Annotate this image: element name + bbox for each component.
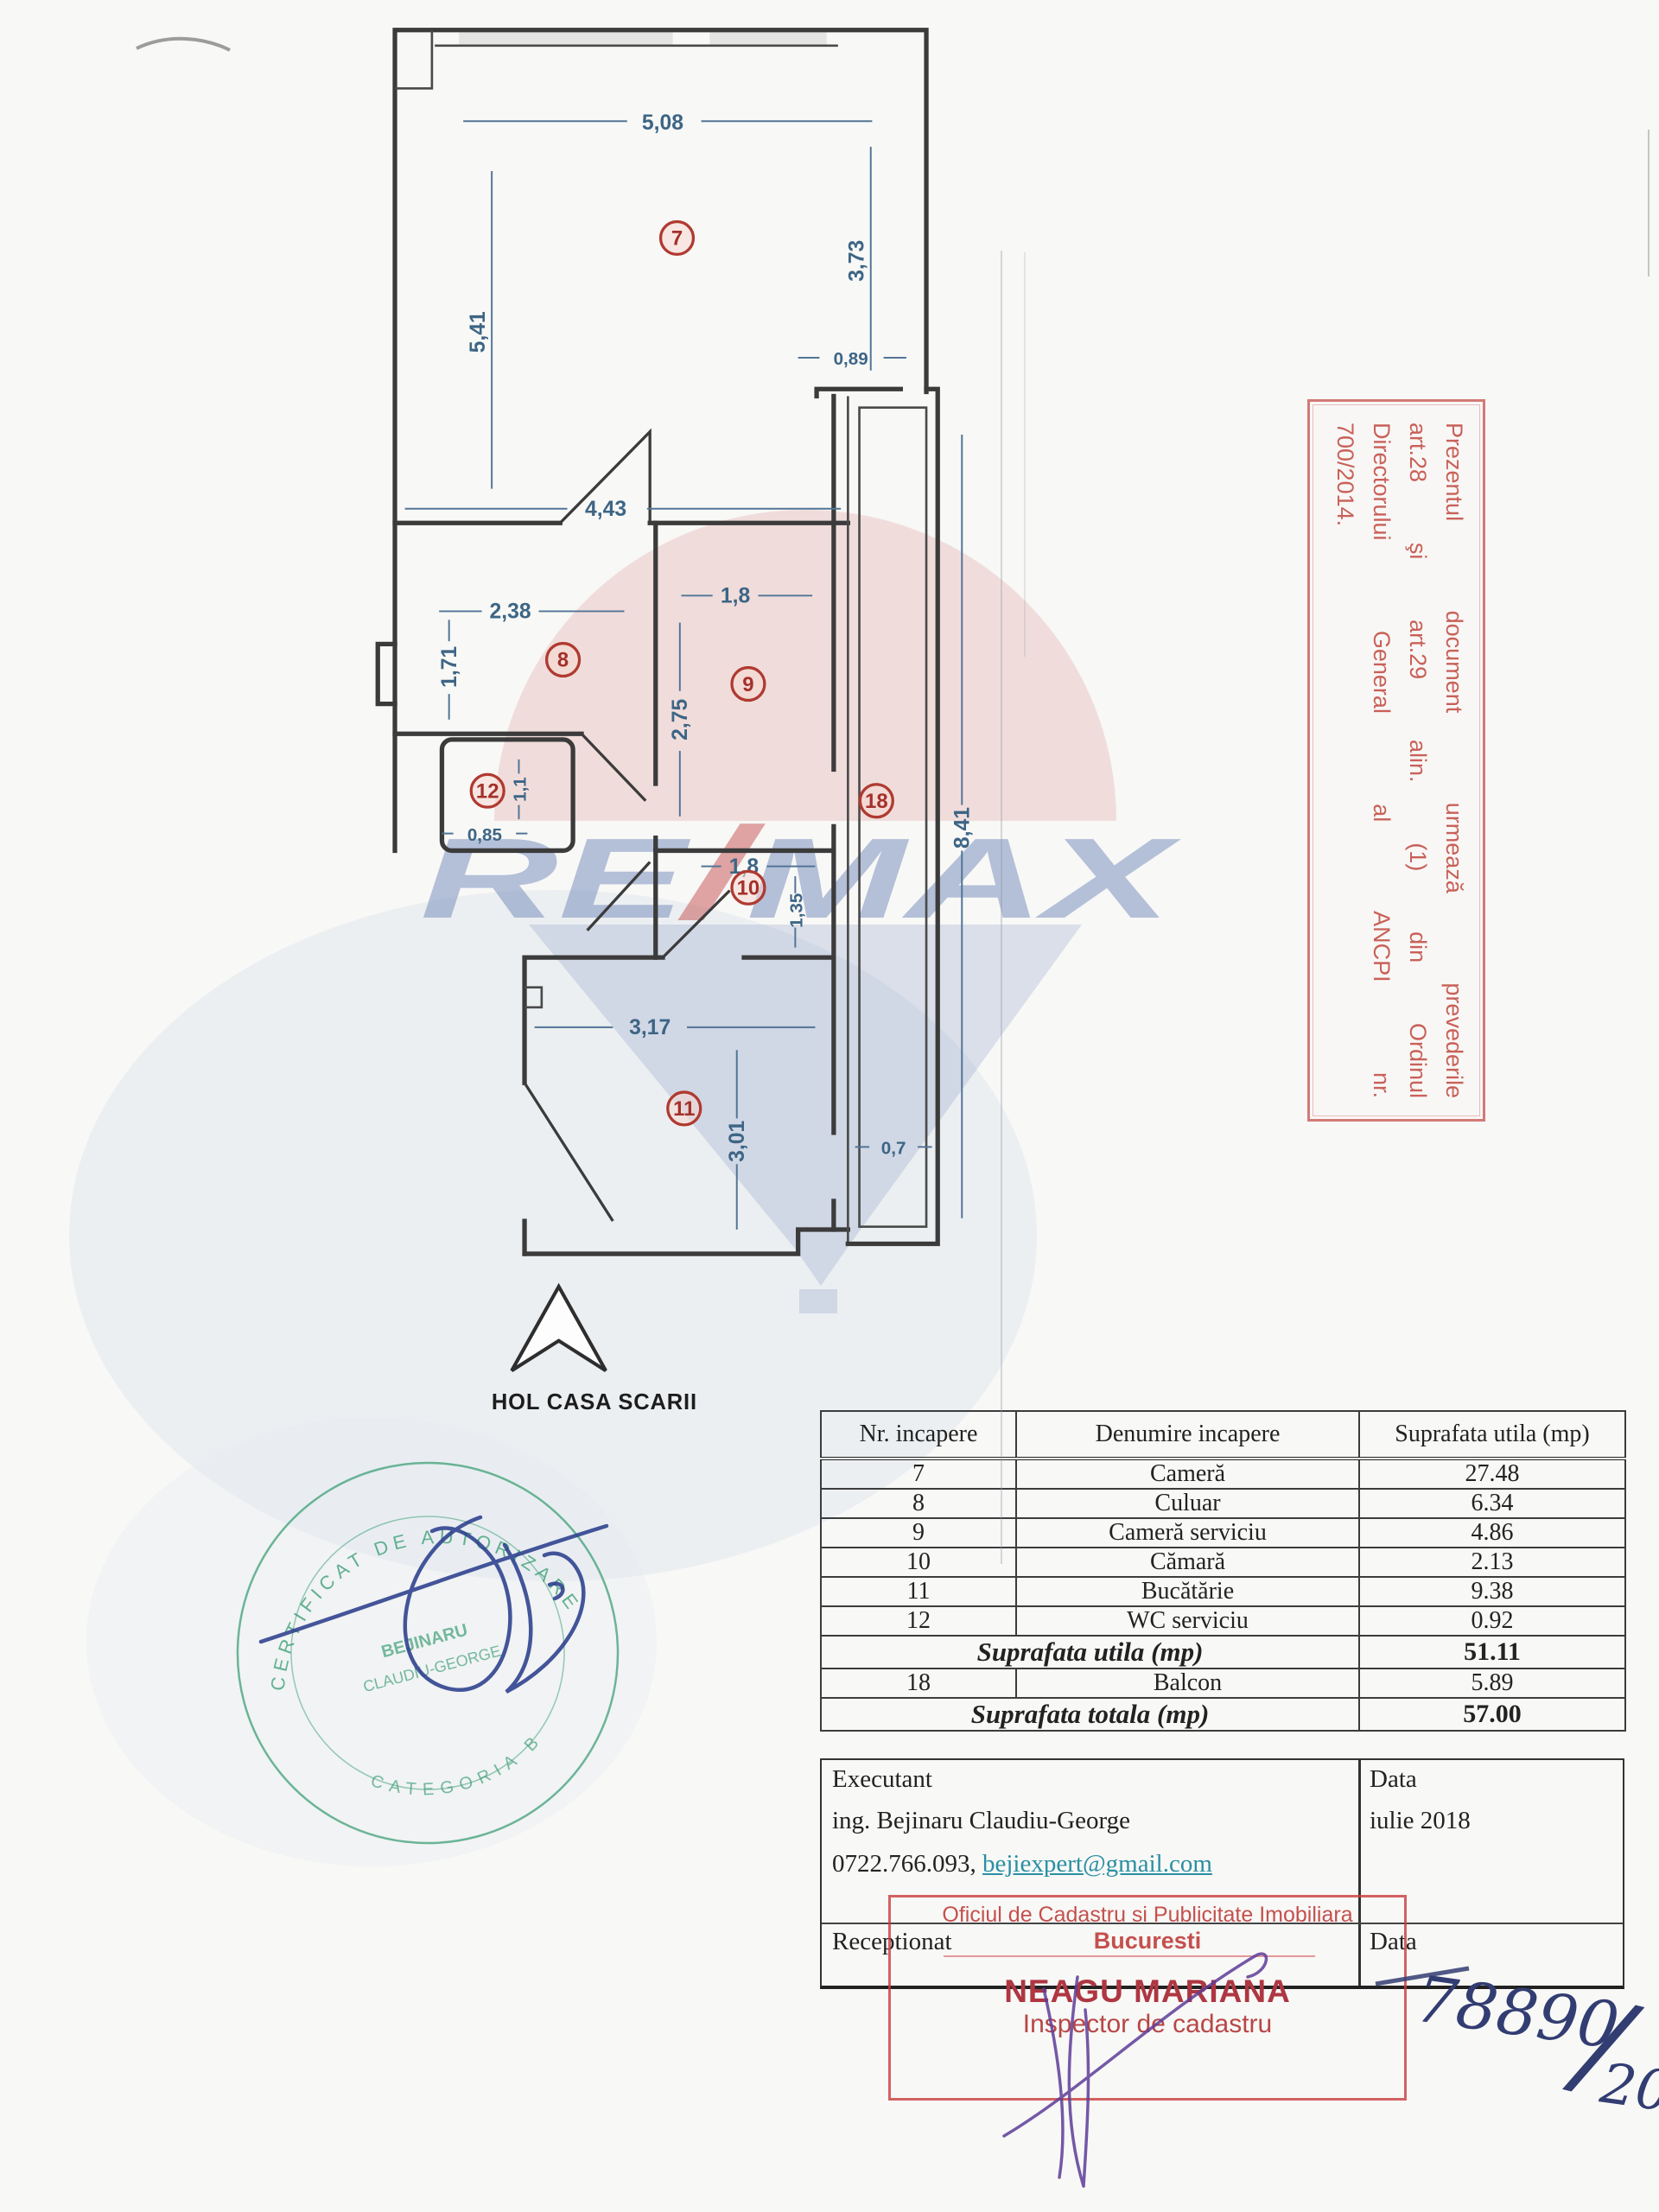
header-suprafata: Suprafata utila (mp) <box>1359 1411 1625 1459</box>
utila-label: Suprafata utila (mp) <box>821 1636 1359 1669</box>
cell-nr: 9 <box>821 1518 1016 1548</box>
table-row: 8Culuar6.34 <box>821 1489 1625 1518</box>
header-denumire: Denumire incapere <box>1016 1411 1359 1459</box>
table-row: 10Cămară2.13 <box>821 1548 1625 1577</box>
utila-value: 51.11 <box>1359 1636 1625 1669</box>
table-row: 18Balcon5.89 <box>821 1669 1625 1698</box>
cell-nr: 7 <box>821 1459 1016 1489</box>
executant-contact: 0722.766.093, bejiexpert@gmail.com <box>832 1850 1212 1878</box>
executant-email-link[interactable]: bejiexpert@gmail.com <box>982 1850 1212 1878</box>
room-area-table: Nr. incapere Denumire incapere Suprafata… <box>820 1410 1626 1732</box>
summary-totala-row: Suprafata totala (mp) 57.00 <box>821 1698 1625 1731</box>
ocpi-inspector-name: NEAGU MARIANA <box>891 1974 1404 2010</box>
cell-denumire: Culuar <box>1016 1489 1359 1518</box>
cell-denumire: Cameră <box>1016 1459 1359 1489</box>
cell-denumire: Cămară <box>1016 1548 1359 1577</box>
cell-nr: 10 <box>821 1548 1016 1577</box>
table-row: 9Cameră serviciu4.86 <box>821 1518 1625 1548</box>
side-stamp-line1: Prezentul document urmează prevederile <box>1436 423 1472 1098</box>
cell-nr: 12 <box>821 1606 1016 1636</box>
ancpi-side-stamp: Prezentul document urmează prevederile a… <box>1307 399 1485 1122</box>
cell-denumire: Balcon <box>1016 1669 1359 1698</box>
scanned-cadastral-document: RE/MAX <box>0 0 1659 2212</box>
cell-suprafata: 2.13 <box>1359 1548 1625 1577</box>
executant-label: Executant <box>832 1765 932 1794</box>
cell-suprafata: 9.38 <box>1359 1577 1625 1606</box>
table-row: 7Cameră27.48 <box>821 1459 1625 1489</box>
table-header-row: Nr. incapere Denumire incapere Suprafata… <box>821 1411 1625 1459</box>
ocpi-line1: Oficiul de Cadastru si Publicitate Imobi… <box>891 1903 1404 1928</box>
cell-nr: 18 <box>821 1669 1016 1698</box>
cell-suprafata: 4.86 <box>1359 1518 1625 1548</box>
summary-utila-row: Suprafata utila (mp) 51.11 <box>821 1636 1625 1669</box>
data-value: iulie 2018 <box>1370 1807 1471 1835</box>
cell-suprafata: 6.34 <box>1359 1489 1625 1518</box>
ocpi-line2: Bucuresti <box>891 1928 1404 1955</box>
cell-nr: 11 <box>821 1577 1016 1606</box>
header-nr-incapere: Nr. incapere <box>821 1411 1016 1459</box>
table-row: 12WC serviciu0.92 <box>821 1606 1625 1636</box>
totala-value: 57.00 <box>1359 1698 1625 1731</box>
data-label: Data <box>1370 1765 1417 1794</box>
cell-denumire: Bucătărie <box>1016 1577 1359 1606</box>
ocpi-inspector-role: Inspector de cadastru <box>891 2010 1404 2039</box>
executant-phone: 0722.766.093, <box>832 1850 976 1878</box>
table-row: 11Bucătărie9.38 <box>821 1577 1625 1606</box>
executant-name: ing. Bejinaru Claudiu-George <box>832 1807 1130 1835</box>
cell-suprafata: 5.89 <box>1359 1669 1625 1698</box>
side-stamp-line2: art.28 şi art.29 alin. (1) din Ordinul <box>1400 423 1436 1098</box>
totala-label: Suprafata totala (mp) <box>821 1698 1359 1731</box>
cell-denumire: Cameră serviciu <box>1016 1518 1359 1548</box>
cell-nr: 8 <box>821 1489 1016 1518</box>
side-stamp-line4: 700/2014. <box>1327 423 1363 1098</box>
cell-suprafata: 0.92 <box>1359 1606 1625 1636</box>
side-stamp-line3: Directorului General al ANCPI nr. <box>1363 423 1400 1098</box>
ocpi-stamp: Oficiul de Cadastru si Publicitate Imobi… <box>888 1895 1407 2101</box>
cell-suprafata: 27.48 <box>1359 1459 1625 1489</box>
room-area-table-wrap: Nr. incapere Denumire incapere Suprafata… <box>820 1410 1624 1732</box>
cell-denumire: WC serviciu <box>1016 1606 1359 1636</box>
